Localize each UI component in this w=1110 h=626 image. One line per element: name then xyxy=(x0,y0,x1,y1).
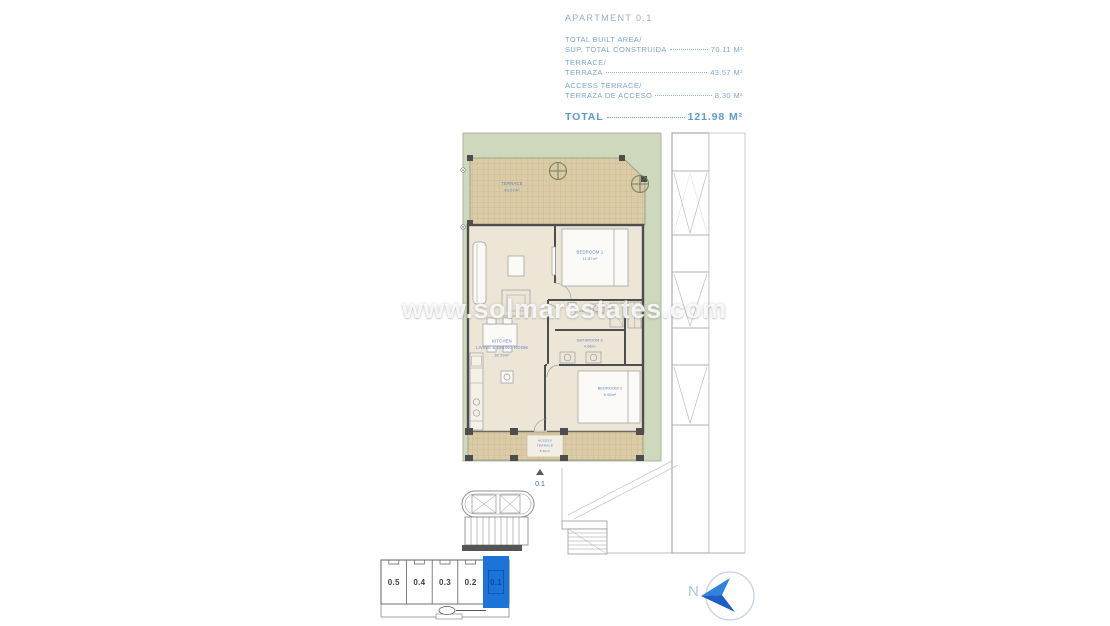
bedroom1-area: 11.87m² xyxy=(582,257,598,261)
unit-option-0-2[interactable]: 0.2 xyxy=(458,560,484,604)
living-dining-label: LIVING & DINING ROOM xyxy=(476,345,528,350)
bedroom2-label: BEDROOM 2 xyxy=(598,387,623,391)
area-row-label-en: TOTAL BUILT AREA/ xyxy=(565,35,642,44)
bathroom2-area: 4.66m² xyxy=(584,345,596,349)
north-compass: N xyxy=(685,563,755,626)
terrace-label: TERRACE xyxy=(501,181,522,186)
sofa xyxy=(473,242,486,304)
area-summary: APARTMENT 0.1 TOTAL BUILT AREA/ SUP. TOT… xyxy=(565,13,743,123)
access-terrace-label2: TERRACE xyxy=(537,444,553,448)
area-row-terrace: TERRACE/ TERRAZA 43.57 M² xyxy=(565,58,743,77)
area-total-row: TOTAL 121.98 M² xyxy=(565,111,743,123)
access-terrace-area: 8.30m² xyxy=(540,449,551,453)
bathroom1-label: BATHROOM 1 xyxy=(574,309,595,313)
kitchen-counter xyxy=(470,353,483,430)
entry-arrow-icon xyxy=(536,469,544,475)
staircase xyxy=(562,521,607,554)
north-arrow-icon xyxy=(701,578,730,596)
dotted-leader xyxy=(670,49,708,50)
dotted-leader xyxy=(607,117,685,118)
area-row-label-es: TERRAZA xyxy=(565,68,603,78)
dotted-leader xyxy=(606,72,707,73)
area-row-label-en: ACCESS TERRACE/ xyxy=(565,81,642,90)
dotted-leader xyxy=(655,95,712,96)
bathroom2-label: BATHROOM 2 xyxy=(577,339,603,343)
unit-marker-label: 0.1 xyxy=(535,481,545,488)
area-row-value: 70.11 M² xyxy=(711,45,743,55)
pool-shape xyxy=(439,607,455,615)
wardrobe xyxy=(552,247,556,275)
appliance xyxy=(501,371,513,383)
area-row-value: 8.30 M² xyxy=(715,91,743,101)
north-label: N xyxy=(688,583,699,600)
area-row-label-en: TERRACE/ xyxy=(565,58,606,67)
bed xyxy=(578,371,640,423)
tree-icon xyxy=(550,163,567,180)
floorplan-page: APARTMENT 0.1 TOTAL BUILT AREA/ SUP. TOT… xyxy=(0,0,1110,626)
terrace-area: 43.57m² xyxy=(504,189,520,193)
planter xyxy=(462,491,534,517)
area-row-value: 43.57 M² xyxy=(710,68,743,78)
kitchen-area: 30.29m² xyxy=(494,354,510,358)
kitchen-label: KITCHEN xyxy=(492,339,512,344)
area-row-access-terrace: ACCESS TERRACE/ TERRAZA DE ACCESO 8.30 M… xyxy=(565,81,743,100)
total-label: TOTAL xyxy=(565,111,604,123)
area-row-label-es: TERRAZA DE ACCESO xyxy=(565,91,652,101)
area-row-label-es: SUP. TOTAL CONSTRUIDA xyxy=(565,45,667,55)
bedroom1-label: BEDROOM 1 xyxy=(577,250,604,255)
access-terrace-label: ACCESS xyxy=(538,439,552,443)
north-arrow-icon-dark xyxy=(701,595,735,612)
unit-option-0-5[interactable]: 0.5 xyxy=(381,560,407,604)
side-corridor xyxy=(672,133,745,553)
apartment-title: APARTMENT 0.1 xyxy=(565,13,743,23)
area-row-built: TOTAL BUILT AREA/ SUP. TOTAL CONSTRUIDA … xyxy=(565,35,743,54)
unit-cells: 0.5 0.4 0.3 0.2 0.1 xyxy=(381,560,509,604)
tv-cabinet xyxy=(508,256,524,276)
unit-option-0-3[interactable]: 0.3 xyxy=(432,560,458,604)
bedroom2-area: 9.00m² xyxy=(604,393,617,397)
unit-option-0-4[interactable]: 0.4 xyxy=(407,560,433,604)
exterior-stairs xyxy=(462,517,528,551)
floor-plan: 0.1 TERRACE 43.57m² xyxy=(450,125,750,565)
tree-icon xyxy=(632,176,649,193)
total-value: 121.98 M² xyxy=(688,111,743,123)
